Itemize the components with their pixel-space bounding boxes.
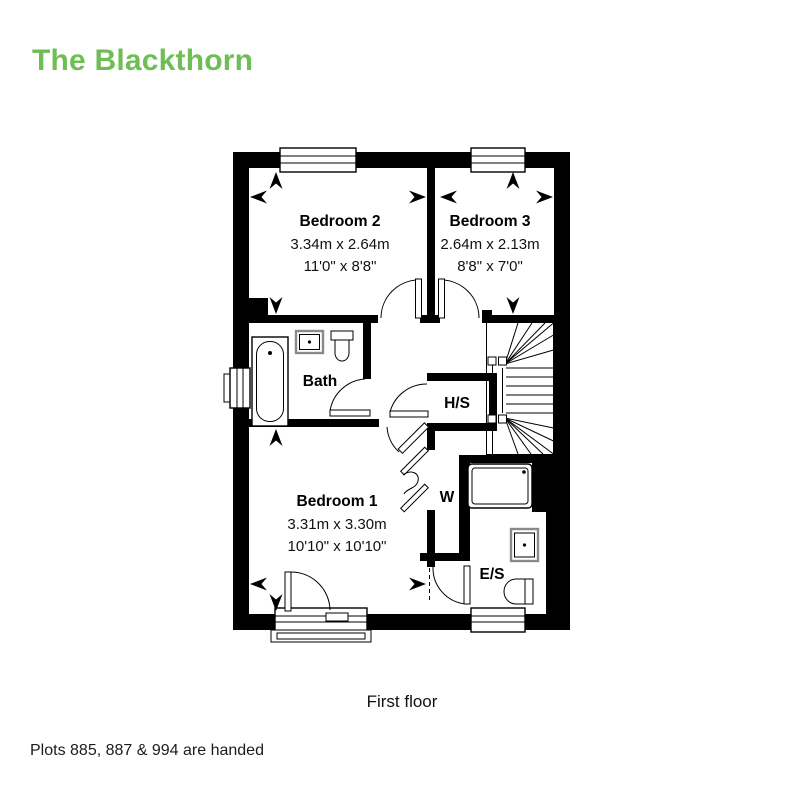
floor-label: First floor [0, 692, 800, 712]
ensuite-door [430, 566, 471, 604]
bedroom3-door [439, 279, 480, 318]
bedroom2-window [280, 148, 356, 172]
ensuite-sink [511, 529, 538, 561]
bedroom1-metric: 3.31m x 3.30m [287, 516, 386, 533]
bedroom1-french-window [271, 608, 371, 642]
hs-cupboard-door [390, 384, 428, 417]
bedroom2-imperial: 11'0" x 8'8" [304, 258, 377, 275]
bedroom2-metric: 3.34m x 2.64m [290, 236, 389, 253]
bedroom3-imperial: 8'8" x 7'0" [457, 258, 523, 275]
bedroom1-label: Bedroom 1 [297, 493, 378, 510]
ensuite-label: E/S [480, 566, 505, 583]
bath-toilet [331, 331, 353, 361]
bedroom3-metric: 2.64m x 2.13m [440, 236, 539, 253]
bedroom1-imperial: 10'10" x 10'10" [288, 538, 387, 555]
bathtub [252, 337, 288, 426]
floor-plan: Bedroom 2 3.34m x 2.64m 11'0" x 8'8" Bed… [0, 0, 800, 787]
bath-label: Bath [303, 373, 337, 390]
bedroom3-label: Bedroom 3 [450, 213, 531, 230]
bedroom2-label: Bedroom 2 [300, 213, 381, 230]
ensuite-toilet [504, 579, 533, 604]
hs-label: H/S [444, 395, 470, 412]
bedroom1-door [387, 423, 429, 453]
wardrobe-label: W [440, 489, 455, 506]
bedroom2-door [381, 279, 422, 318]
ensuite-window [471, 608, 525, 632]
bath-sink [296, 331, 323, 353]
handed-note: Plots 885, 887 & 994 are handed [30, 742, 264, 760]
wardrobe-bifold-doors [401, 447, 429, 512]
page: { "header": { "title": "The Blackthorn",… [0, 0, 800, 787]
bath-window [224, 368, 250, 408]
shower [468, 464, 532, 508]
bedroom3-window [471, 148, 525, 172]
